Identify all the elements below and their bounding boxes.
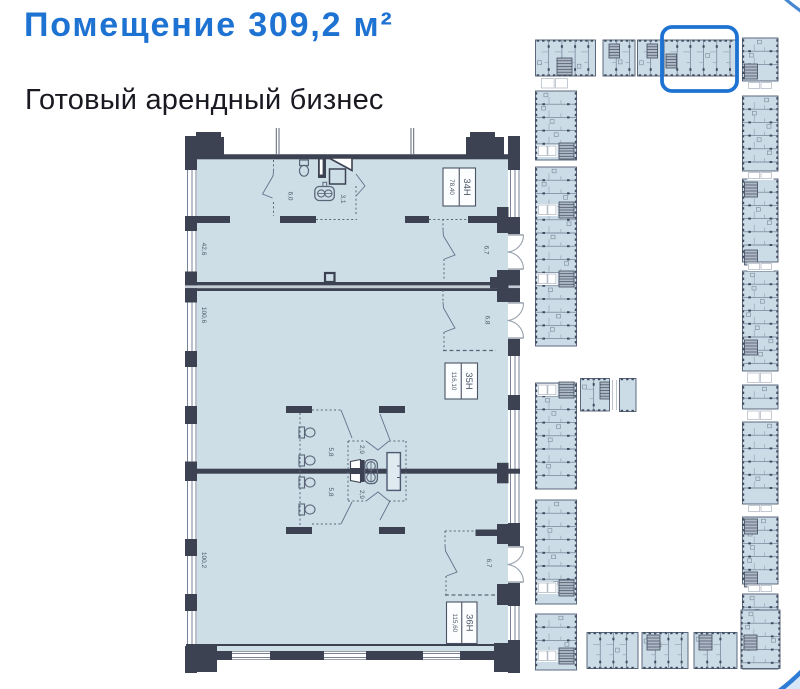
svg-text:100,6: 100,6 xyxy=(200,307,207,324)
svg-text:78,40: 78,40 xyxy=(448,179,455,195)
svg-text:36Н: 36Н xyxy=(463,614,474,632)
svg-text:6,7: 6,7 xyxy=(483,245,490,254)
svg-text:6,7: 6,7 xyxy=(485,558,492,567)
svg-text:5,8: 5,8 xyxy=(327,487,334,496)
svg-text:35Н: 35Н xyxy=(463,372,474,390)
svg-text:6,8: 6,8 xyxy=(484,315,491,324)
svg-text:5,8: 5,8 xyxy=(327,447,334,456)
svg-text:116,10: 116,10 xyxy=(450,372,457,391)
svg-text:42,6: 42,6 xyxy=(200,243,207,256)
svg-text:2,9: 2,9 xyxy=(358,490,365,499)
svg-text:100,2: 100,2 xyxy=(200,552,207,569)
svg-text:2,9: 2,9 xyxy=(358,445,365,454)
svg-text:6,0: 6,0 xyxy=(287,191,294,200)
svg-text:34Н: 34Н xyxy=(461,178,472,196)
svg-text:3,1: 3,1 xyxy=(339,194,346,203)
svg-text:115,60: 115,60 xyxy=(451,613,458,632)
